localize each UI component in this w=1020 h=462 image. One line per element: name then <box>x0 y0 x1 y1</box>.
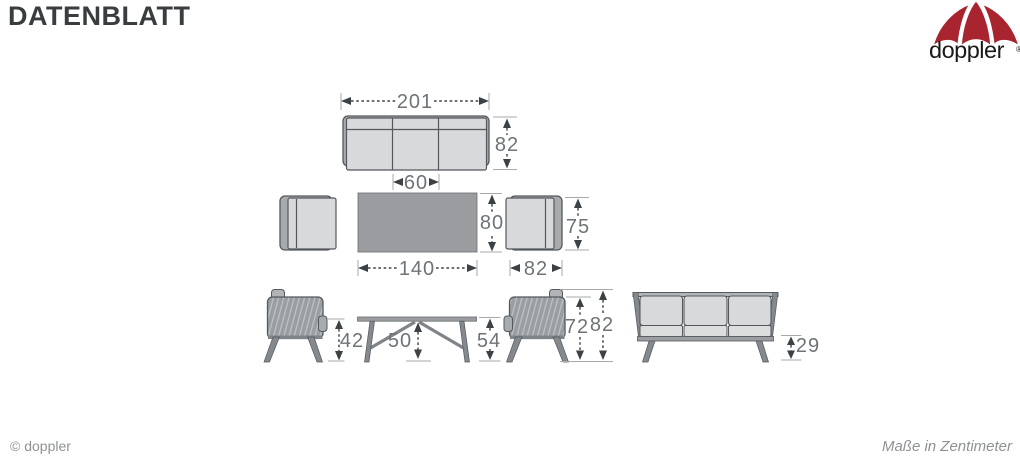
armchair-left-top-view <box>280 196 336 250</box>
dim-sofa-middle-seat-width: 60 <box>393 172 439 194</box>
dim-table-clearance-height: 50 <box>388 323 431 362</box>
dim-label-table-depth: 80 <box>480 212 504 234</box>
dim-chair-back-height: 72 <box>565 297 591 360</box>
dim-table-depth: 80 <box>480 194 504 253</box>
sofa-top-view <box>343 116 489 170</box>
dim-label-sofa-depth: 82 <box>495 134 519 156</box>
dim-label-sofa-seat-height: 29 <box>796 335 820 357</box>
dim-sofa-top-depth: 82 <box>493 117 519 170</box>
dimension-drawing: 201 82 60 <box>0 0 1020 462</box>
dim-label-table-clearance: 50 <box>388 330 412 352</box>
units-note: Maße in Zentimeter <box>882 438 1012 455</box>
dim-label-chair-depth: 75 <box>566 216 590 238</box>
dim-label-chair-back-height: 72 <box>565 316 589 338</box>
sofa-front-view <box>633 293 778 363</box>
dim-label-middle-seat-width: 60 <box>404 172 428 194</box>
table-top-view <box>358 193 477 252</box>
dim-sofa-top-width: 201 <box>341 91 489 113</box>
dim-chair-width: 82 <box>510 258 562 280</box>
dim-label-table-height: 54 <box>477 330 501 352</box>
armchair-left-side-view <box>264 290 327 363</box>
dim-label-table-width: 140 <box>399 258 435 280</box>
dim-chair-seat-height: 42 <box>328 319 364 361</box>
dim-sofa-seat-height: 29 <box>781 335 820 360</box>
dim-label-chair-seat-height: 42 <box>340 330 364 352</box>
dim-label-chair-width: 82 <box>524 258 548 280</box>
dim-table-width: 140 <box>358 258 477 280</box>
datasheet-page: DATENBLATT doppler ® 201 <box>0 0 1020 462</box>
dim-label-chair-total-height: 82 <box>590 314 614 336</box>
dim-chair-depth: 75 <box>565 198 590 251</box>
dim-label-sofa-width: 201 <box>397 91 433 113</box>
dim-table-height: 54 <box>477 318 501 362</box>
armchair-right-top-view <box>506 196 562 250</box>
copyright-note: © doppler <box>10 438 71 454</box>
armchair-right-side-view <box>504 290 569 363</box>
